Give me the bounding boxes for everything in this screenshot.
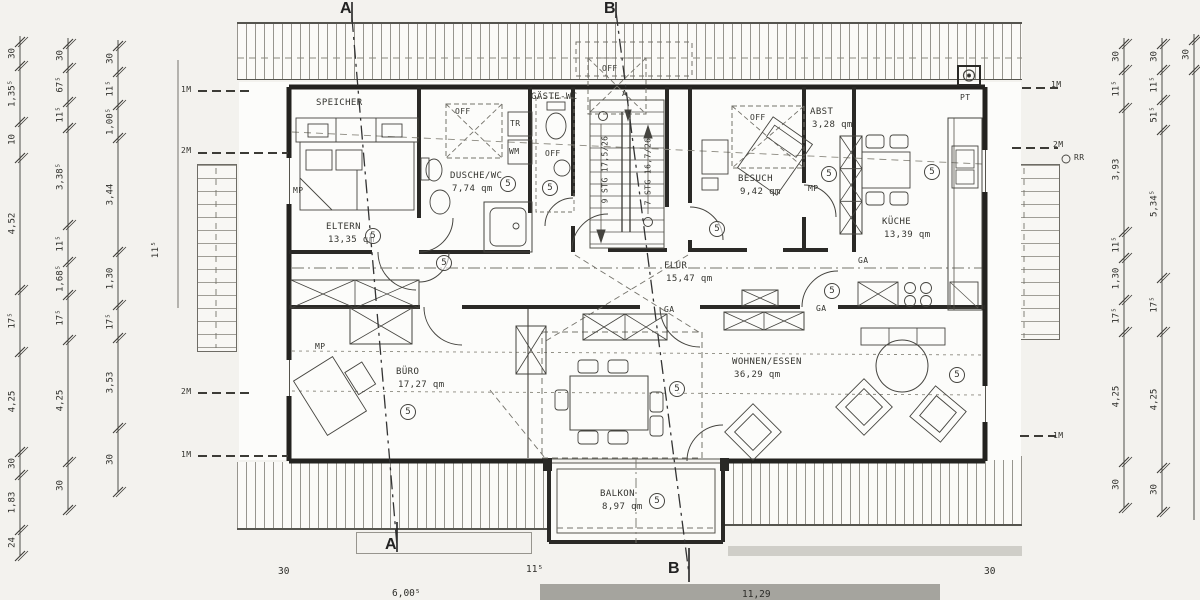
room-area-abst: 3,28 qm (812, 120, 853, 131)
section-marker-a-bottom: A (385, 536, 397, 554)
ga-label: GA (816, 303, 826, 314)
unit-number-badge: 5 (924, 164, 940, 180)
section-marker-b-bottom: B (668, 560, 680, 578)
room-name-speicher: SPEICHER (316, 98, 363, 109)
room-area-besuch: 9,42 qm (740, 187, 781, 198)
dimension-value: 17⁵ (8, 293, 19, 349)
two_meter-label: 2M (181, 145, 191, 156)
dimension-value: 4,25 (8, 374, 19, 430)
room-area-dusche: 7,74 qm (452, 184, 493, 195)
dimension-value: 11⁵ (1112, 61, 1123, 117)
off-label: OFF (545, 148, 561, 159)
room-name-gaeste_wc: GÄSTE-WC (531, 92, 578, 103)
unit-number-badge: 5 (669, 381, 685, 397)
unit-number-badge: 5 (949, 367, 965, 383)
unit-number-badge: 5 (436, 255, 452, 271)
one_meter-label: 1M (181, 84, 191, 95)
dimension-value: 5,34⁵ (1150, 176, 1161, 232)
dimension-value: 4,25 (1112, 369, 1123, 425)
one_meter-label: 1M (181, 449, 191, 460)
unit-number-badge: 5 (821, 166, 837, 182)
dimension-value: 10 (8, 112, 19, 168)
unit-number-badge: 5 (709, 221, 725, 237)
room-name-abst: ABST (810, 107, 833, 118)
wall-thickness-dim: 11⁵ (151, 241, 162, 258)
room-name-buero: BÜRO (396, 367, 419, 378)
dimension-value: 3,93 (1112, 142, 1123, 198)
dimension-value: 30 (1150, 462, 1161, 518)
dimension-value: 1,00⁵ (106, 93, 117, 149)
room-name-flur: FLUR (664, 261, 687, 272)
room-name-dusche: DUSCHE/WC (450, 171, 502, 182)
off-label: OFF (455, 106, 471, 117)
dimension-value-bottom: 6,00⁵ (392, 588, 421, 599)
unit-number-badge: 5 (500, 176, 516, 192)
room-area-balkon: 8,97 qm (602, 502, 643, 513)
dimension-value-bottom: 11,29 (742, 589, 771, 600)
mp-label: MP (315, 341, 325, 352)
dimension-value-bottom: 11⁵ (526, 564, 543, 575)
one_meter-label: 1M (1051, 79, 1061, 90)
two_meter-label: 2M (181, 386, 191, 397)
off-label: OFF (750, 112, 766, 123)
dimension-value-bottom: 30 (984, 566, 995, 577)
dimension-value: 30 (1182, 27, 1193, 83)
tr-label: TR (510, 118, 520, 129)
floorplan-sheet: 301,35⁵104,5217⁵4,25301,83243067⁵11⁵3,38… (0, 0, 1200, 600)
mp-label: MP (293, 185, 303, 196)
room-name-kueche: KÜCHE (882, 217, 911, 228)
stair-flight-up: 9 STG 17,5/26 (600, 134, 611, 206)
mp-label: MP (808, 183, 818, 194)
room-name-balkon: BALKON (600, 489, 635, 500)
dimension-value: 17⁵ (1150, 277, 1161, 333)
section-marker-b-top: B (604, 0, 616, 18)
ga-label: GA (664, 304, 674, 315)
room-area-kueche: 13,39 qm (884, 230, 931, 241)
one_meter-label: 1M (1053, 430, 1063, 441)
dimension-value: 24 (8, 515, 19, 571)
unit-number-badge: 5 (542, 180, 558, 196)
dimension-value: 3,38⁵ (56, 148, 67, 204)
stair-direction-a: A (622, 88, 627, 99)
wm-label: WM (509, 146, 519, 157)
two_meter-label: 2M (1053, 139, 1063, 150)
room-area-flur: 15,47 qm (666, 274, 713, 285)
dimension-value: 51⁵ (1150, 87, 1161, 143)
room-area-buero: 17,27 qm (398, 380, 445, 391)
room-area-wohnen_essen: 36,29 qm (734, 370, 781, 381)
dimension-value: 17⁵ (106, 293, 117, 349)
room-name-besuch: BESUCH (738, 174, 773, 185)
dimension-value-bottom: 30 (278, 566, 289, 577)
dimension-value: 3,53 (106, 355, 117, 411)
dimension-value: 11⁵ (56, 87, 67, 143)
unit-number-badge: 5 (649, 493, 665, 509)
room-name-wohnen_essen: WOHNEN/ESSEN (732, 357, 802, 368)
dimension-value: 17⁵ (1112, 288, 1123, 344)
rr-label: RR (1074, 152, 1084, 163)
unit-number-badge: 5 (400, 404, 416, 420)
stair-flight-down: 7 STG 16,7/26 (643, 136, 654, 208)
section-marker-a-top: A (340, 0, 352, 18)
pt-label: PT (960, 92, 970, 103)
dimension-value: 30 (1112, 457, 1123, 513)
room-name-eltern: ELTERN (326, 222, 361, 233)
dimension-value: 4,25 (56, 373, 67, 429)
dimension-value: 4,25 (1150, 372, 1161, 428)
dimension-value: 17⁵ (56, 289, 67, 345)
ga-label: GA (858, 255, 868, 266)
dimension-value: 4,52 (8, 196, 19, 252)
dimension-value: 30 (56, 458, 67, 514)
unit-number-badge: 5 (824, 283, 840, 299)
dimension-value: 3,44 (106, 167, 117, 223)
unit-number-badge: 5 (365, 228, 381, 244)
off-label: OFF (602, 63, 618, 74)
floorplan-drawing (0, 0, 1200, 600)
dimension-value: 30 (106, 432, 117, 488)
